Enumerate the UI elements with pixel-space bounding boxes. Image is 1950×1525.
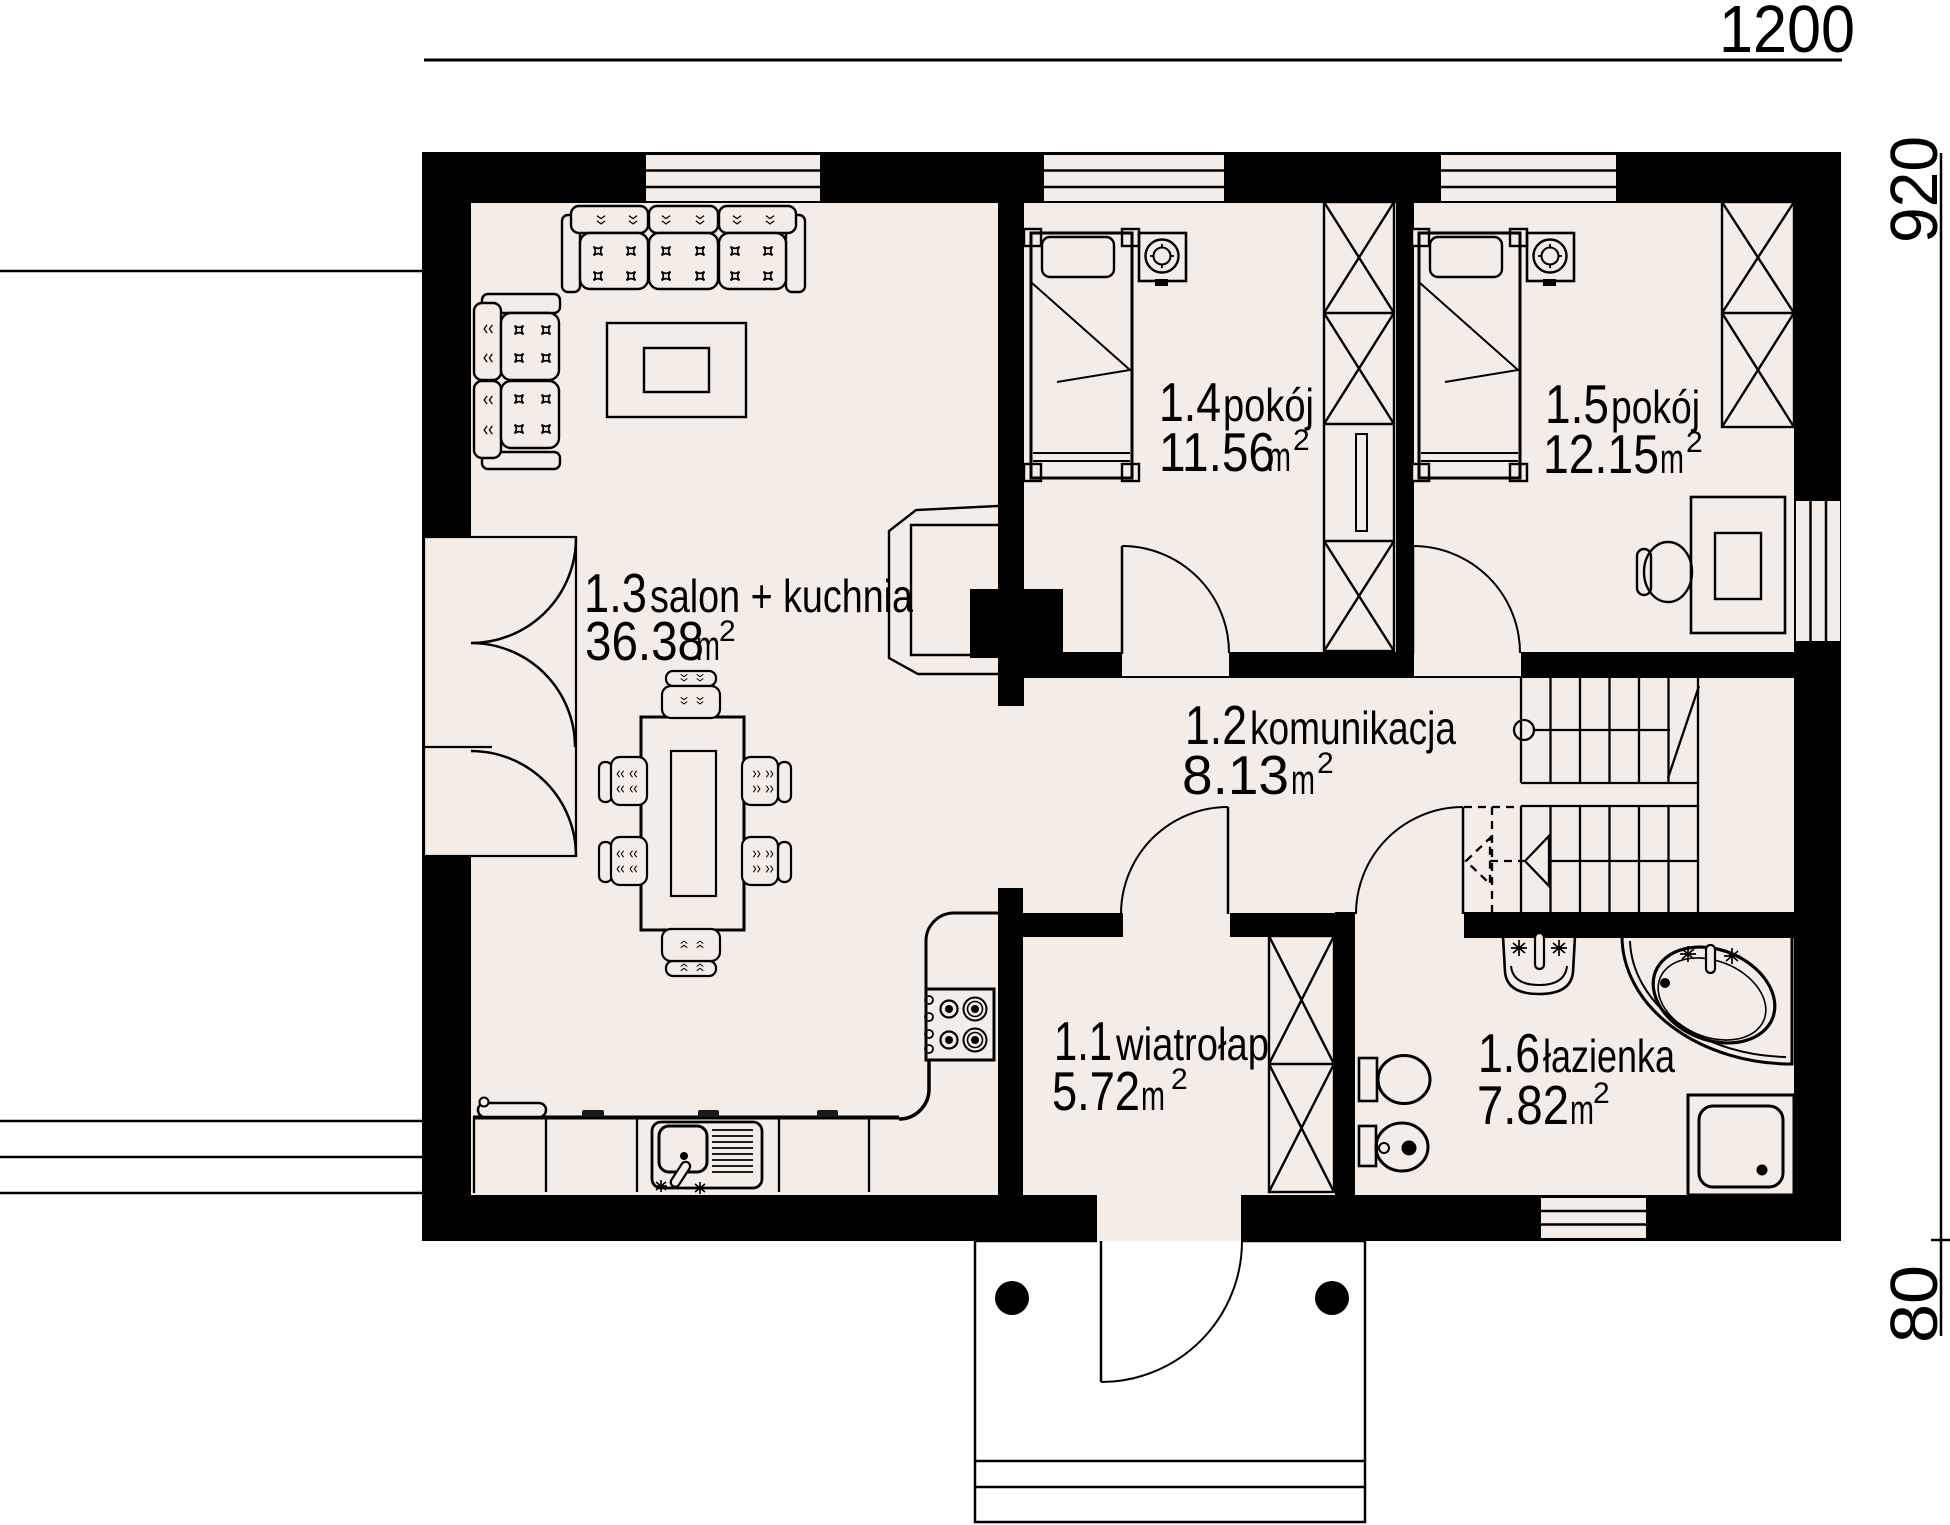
- svg-text:m: m: [1660, 435, 1684, 482]
- svg-text:2: 2: [1317, 747, 1334, 780]
- svg-text:12.15: 12.15: [1543, 423, 1659, 485]
- svg-text:m: m: [1291, 756, 1315, 803]
- svg-text:m: m: [696, 622, 720, 669]
- svg-text:2: 2: [719, 615, 736, 648]
- svg-text:m: m: [1267, 433, 1291, 480]
- svg-text:5.72: 5.72: [1052, 1060, 1140, 1122]
- svg-text:2: 2: [1593, 1077, 1610, 1110]
- svg-text:8.13: 8.13: [1182, 744, 1289, 806]
- svg-text:36.38: 36.38: [585, 610, 704, 672]
- svg-text:1200: 1200: [1719, 0, 1855, 67]
- svg-text:2: 2: [1293, 424, 1310, 457]
- svg-text:m: m: [1141, 1072, 1165, 1119]
- svg-text:2: 2: [1171, 1063, 1188, 1096]
- svg-text:80: 80: [1877, 1265, 1950, 1343]
- svg-text:2: 2: [1686, 426, 1703, 459]
- svg-text:920: 920: [1877, 136, 1950, 243]
- svg-text:11.56: 11.56: [1159, 421, 1275, 483]
- svg-text:m: m: [1570, 1086, 1594, 1133]
- svg-text:7.82: 7.82: [1477, 1074, 1569, 1136]
